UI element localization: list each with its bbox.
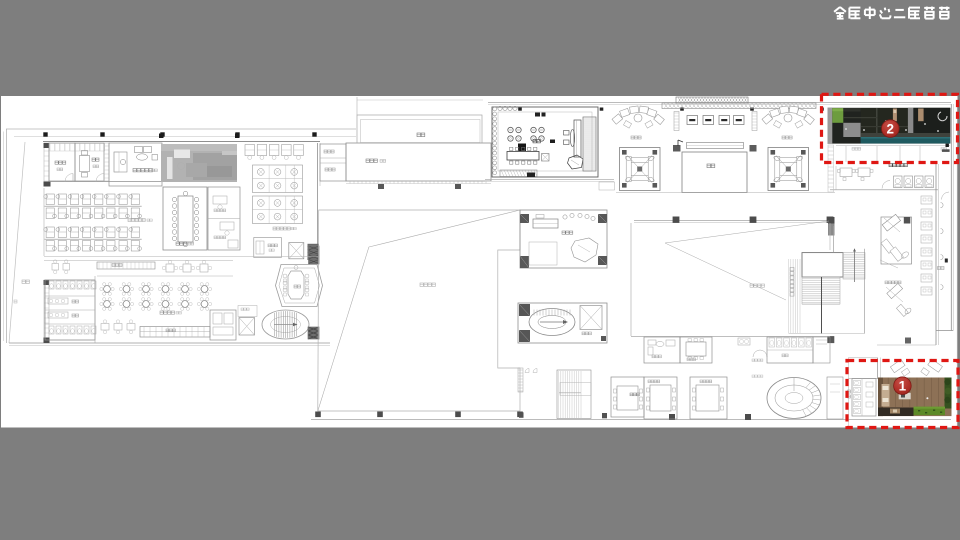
svg-text:2: 2: [887, 121, 895, 136]
svg-text:1: 1: [899, 379, 907, 394]
